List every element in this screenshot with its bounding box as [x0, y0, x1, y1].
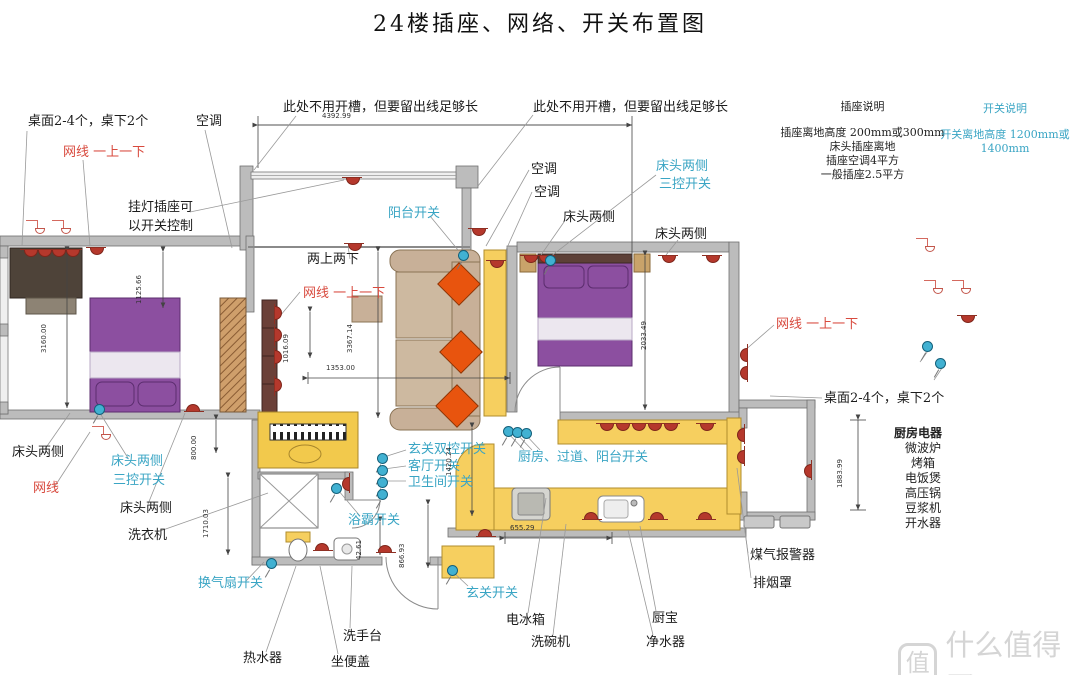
socket-icon	[186, 404, 202, 412]
washing-machine-label: 洗衣机	[128, 529, 167, 543]
kitchen-corridor-balcony-switch-label: 厨房、过道、阳台开关	[518, 451, 648, 465]
socket-icon	[470, 228, 486, 236]
dimension-text: 1420.24	[445, 447, 453, 476]
socket-icon	[740, 364, 748, 380]
socket-icon	[342, 475, 350, 491]
netcable-bl-label: 网线	[33, 482, 59, 496]
netcable-right-label: 网线 一上一下	[776, 318, 858, 332]
socket-icon	[274, 350, 282, 366]
bed-left	[90, 298, 180, 412]
dimension-text: 1125.66	[135, 275, 143, 304]
dimension-text: 866.93	[398, 544, 406, 569]
socket-icon	[737, 448, 745, 464]
socket-symbol-icon	[92, 424, 112, 440]
socket-legend-line: 一般插座2.5平方	[770, 168, 955, 182]
desk-sockets-left-label: 桌面2-4个，桌下2个	[28, 115, 148, 129]
switch-legend: 开关说明 开关离地高度 1200mm或1400mm	[920, 102, 1080, 156]
kitchen-list-item: 高压锅	[868, 486, 978, 501]
cabinet-strip	[484, 250, 506, 416]
kitchen-appliance-list: 厨房电器 微波炉 烤箱 电饭煲 高压锅 豆浆机 开水器	[868, 426, 978, 531]
socket-icon	[378, 545, 394, 553]
switch-icon	[377, 465, 388, 476]
bedside-3way-right-1-label: 床头两侧	[656, 160, 708, 174]
socket-symbol-icon	[952, 278, 972, 294]
bedside-right-b-label: 床头两侧	[655, 228, 707, 242]
socket-icon	[88, 247, 104, 255]
bedside-3way-left-1-label: 床头两侧	[111, 455, 163, 469]
watermark-text: 什么值得买	[945, 622, 1080, 675]
socket-symbol-icon	[916, 236, 936, 252]
socket-icon	[478, 529, 494, 537]
socket-icon	[698, 423, 714, 431]
kitchen-list-title: 厨房电器	[868, 426, 978, 441]
socket-icon	[698, 512, 714, 520]
bedside-right-a-label: 床头两侧	[563, 211, 615, 225]
two-up-two-down-label: 两上两下	[307, 253, 359, 267]
piano	[258, 412, 358, 468]
socket-icon	[344, 177, 360, 185]
lamp-socket-2-label: 以开关控制	[128, 220, 193, 234]
socket-icon	[274, 378, 282, 394]
socket-icon	[650, 512, 666, 520]
socket-icon	[660, 255, 676, 263]
fan-switch-label: 换气扇开关	[198, 577, 263, 591]
dimension-text: 1016.09	[282, 334, 290, 363]
socket-symbol-icon	[26, 218, 46, 234]
gas-alarm-label: 煤气报警器	[750, 549, 815, 563]
socket-icon	[704, 255, 720, 263]
bedside-3way-left-2-label: 三控开关	[113, 474, 165, 488]
switch-legend-title: 开关说明	[920, 102, 1080, 116]
range-hood-label: 排烟罩	[753, 577, 792, 591]
sofa	[352, 250, 482, 430]
kitchen-list-item: 烤箱	[868, 456, 978, 471]
switch-icon	[377, 477, 388, 488]
switch-icon	[447, 565, 458, 576]
socket-icon	[274, 306, 282, 322]
socket-icon	[614, 423, 630, 431]
socket-icon	[630, 423, 646, 431]
socket-icon	[737, 426, 745, 442]
bedside-3way-right-2-label: 三控开关	[659, 178, 711, 192]
floorplan-page: 24楼插座、网络、开关布置图 插座说明 插座离地高度 200mm或300mm 床…	[0, 0, 1080, 675]
dimension-text: 3367.14	[346, 324, 354, 353]
water-heater-label: 热水器	[243, 652, 282, 666]
dishwasher-label: 洗碗机	[531, 636, 570, 650]
appliance-block	[780, 516, 810, 528]
socket-icon	[346, 243, 362, 251]
page-title: 24楼插座、网络、开关布置图	[0, 6, 1080, 38]
dimension-text: 3160.00	[40, 324, 48, 353]
bedside-bl-label: 床头两侧	[12, 446, 64, 460]
socket-icon	[274, 328, 282, 344]
netcable-left-label: 网线 一上一下	[63, 146, 145, 160]
bath-heater-switch-label: 浴霸开关	[348, 514, 400, 528]
kitchen-list-item: 开水器	[868, 516, 978, 531]
furniture	[10, 248, 810, 609]
dimension-text: 800.00	[190, 436, 198, 461]
dimension-text: 1883.99	[836, 459, 844, 488]
socket-icon	[522, 255, 538, 263]
wardrobe	[220, 298, 246, 412]
ac-mid-1-label: 空调	[531, 163, 557, 177]
socket-icon	[740, 346, 748, 362]
no-groove-1-label: 此处不用开槽，但要留出线足够长	[283, 101, 478, 115]
appliance-block	[744, 516, 774, 528]
socket-legend-line: 插座空调4平方	[770, 154, 955, 168]
no-groove-2-label: 此处不用开槽，但要留出线足够长	[533, 101, 728, 115]
socket-icon	[584, 512, 600, 520]
socket-symbol-icon	[924, 278, 944, 294]
dimension-text: 655.29	[510, 524, 535, 532]
switch-icon	[935, 358, 946, 369]
dimension-text: 1353.00	[326, 364, 355, 372]
entry-switch-label: 玄关开关	[466, 587, 518, 601]
socket-icon	[662, 423, 678, 431]
socket-icon	[64, 249, 80, 257]
switch-icon	[458, 250, 469, 261]
dimension-text: 4392.99	[322, 112, 351, 120]
toilet-lid-label: 坐便盖	[331, 656, 370, 670]
socket-icon	[598, 423, 614, 431]
switch-icon	[331, 483, 342, 494]
switch-icon	[94, 404, 105, 415]
desk-sockets-right-label: 桌面2-4个，桌下2个	[824, 392, 944, 406]
bed-right	[520, 254, 650, 366]
bathroom-switch-label: 卫生间开关	[408, 476, 473, 490]
kitchen-water-heater-label: 厨宝	[652, 612, 678, 626]
switch-icon	[922, 341, 933, 352]
socket-icon	[315, 543, 331, 551]
kitchen-counter	[442, 418, 741, 578]
watermark: 值 什么值得买	[898, 622, 1080, 675]
bedside-bl2-label: 床头两侧	[120, 502, 172, 516]
switch-icon	[521, 428, 532, 439]
ac-mid-2-label: 空调	[534, 186, 560, 200]
water-purifier-label: 净水器	[646, 636, 685, 650]
dimension-text: 1710.03	[202, 509, 210, 538]
socket-icon	[646, 423, 662, 431]
wash-basin-label: 洗手台	[343, 630, 382, 644]
kitchen-list-item: 电饭煲	[868, 471, 978, 486]
fridge-label: 电冰箱	[506, 614, 545, 628]
socket-icon	[959, 315, 975, 323]
socket-icon	[488, 260, 504, 268]
watermark-badge: 值	[898, 643, 937, 675]
switch-icon	[377, 489, 388, 500]
kitchen-list-item: 豆浆机	[868, 501, 978, 516]
switch-icon	[377, 453, 388, 464]
netcable-mid-label: 网线 一上一下	[303, 287, 385, 301]
kitchen-list-item: 微波炉	[868, 441, 978, 456]
socket-symbol-icon	[52, 218, 72, 234]
ac-left-label: 空调	[196, 115, 222, 129]
dimension-text: 2033.49	[640, 321, 648, 350]
socket-icon	[804, 462, 812, 478]
switch-icon	[545, 255, 556, 266]
switch-legend-line: 开关离地高度 1200mm或1400mm	[920, 128, 1080, 156]
lamp-socket-1-label: 挂灯插座可	[128, 201, 193, 215]
switch-icon	[266, 558, 277, 569]
balcony-switch-label: 阳台开关	[388, 207, 440, 221]
dimension-text: 42.61	[355, 540, 363, 560]
